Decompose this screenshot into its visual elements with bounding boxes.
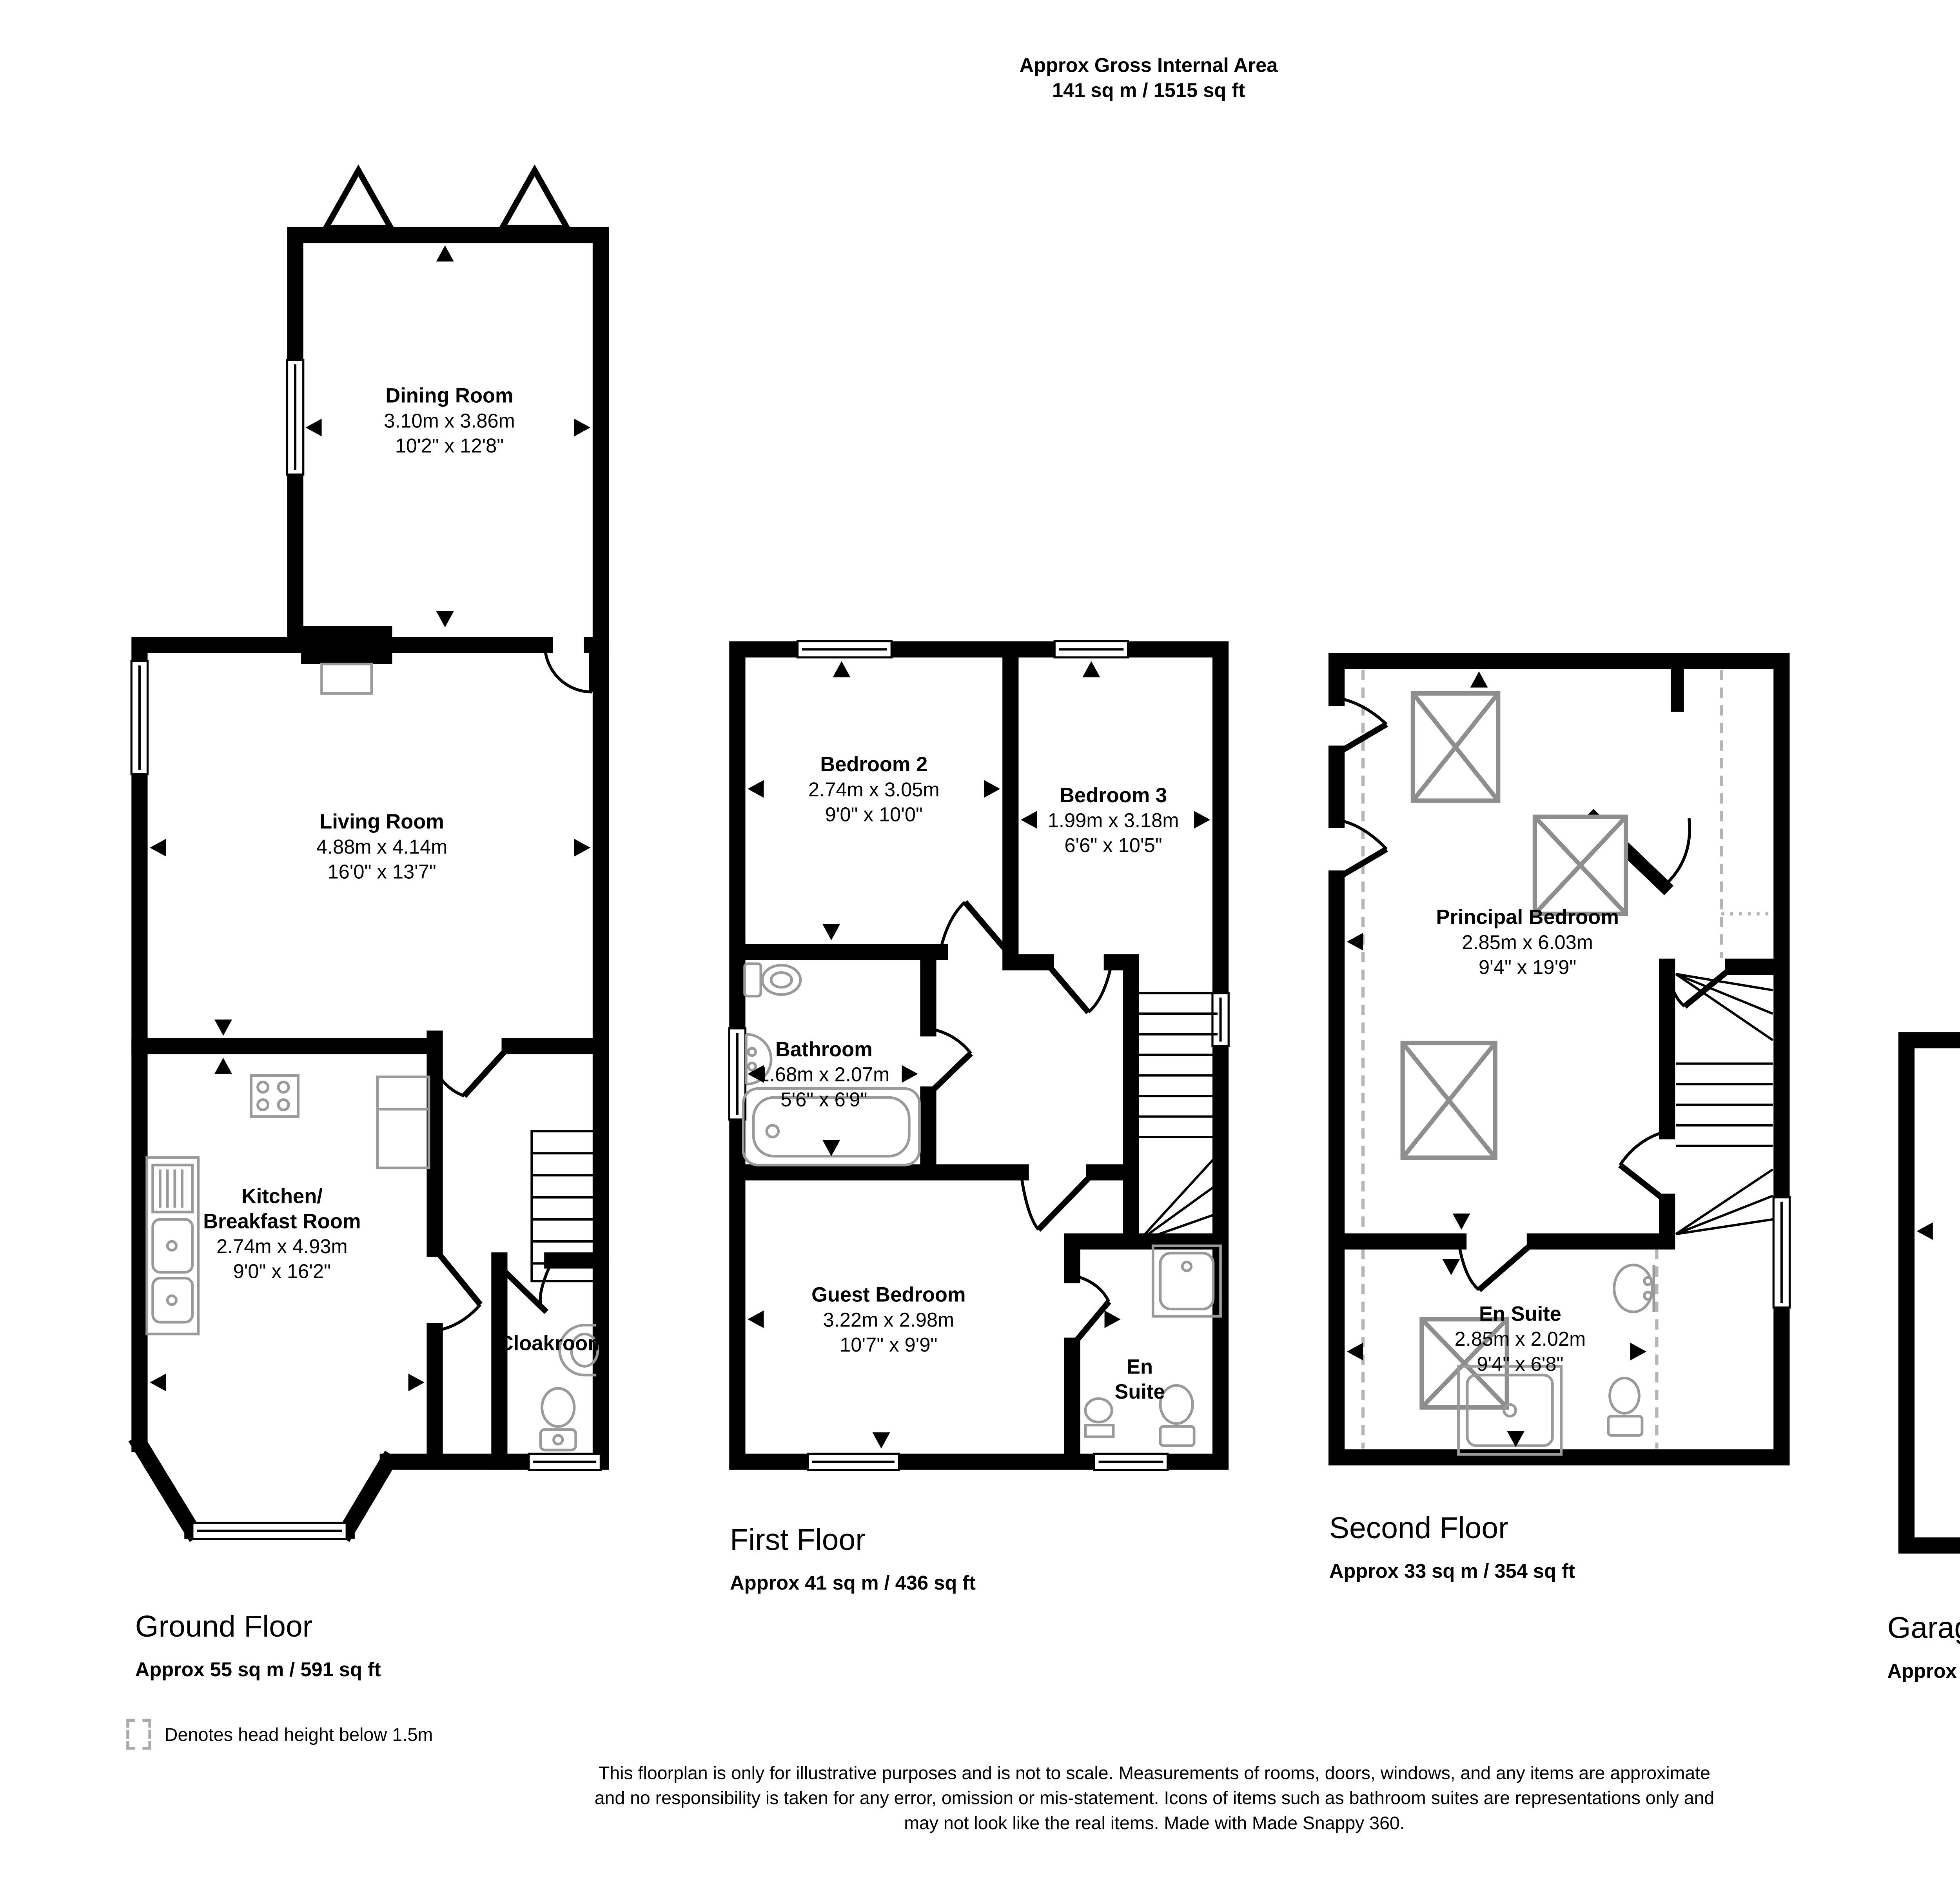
hob-icon (251, 1076, 298, 1117)
floor-label-garage: Garage Approx 12 sq m / 134 sq ft (1887, 1612, 1960, 1682)
toilet-icon (1608, 1378, 1642, 1435)
room-label-dining: Dining Room 3.10m x 3.86m 10'2" x 12'8" (384, 383, 515, 458)
room-label-ensuite-second: En Suite 2.85m x 2.02m 9'4" x 6'8" (1455, 1302, 1586, 1377)
room-label-bedroom3: Bedroom 3 1.99m x 3.18m 6'6" x 10'5" (1048, 783, 1179, 858)
room-label-cloakroom: Cloakroom (499, 1331, 606, 1356)
fridge-icon (377, 1077, 429, 1168)
disclaimer-line3: may not look like the real items. Made w… (904, 1813, 1405, 1833)
disclaimer: This floorplan is only for illustrative … (595, 1761, 1715, 1836)
toilet-icon (541, 1388, 576, 1450)
sink-icon (1614, 1265, 1654, 1312)
room-label-kitchen: Kitchen/ Breakfast Room 2.74m x 4.93m 9'… (203, 1184, 361, 1284)
gable-icon (502, 171, 567, 228)
room-label-bedroom2: Bedroom 2 2.74m x 3.05m 9'0" x 10'0" (808, 752, 940, 827)
title-line2: 141 sq m / 1515 sq ft (1052, 79, 1245, 101)
kitchen-sink-icon (147, 1157, 198, 1334)
sink-icon (1085, 1399, 1113, 1437)
floor-label-first: First Floor Approx 41 sq m / 436 sq ft (730, 1523, 976, 1594)
head-height-swatch-icon (126, 1719, 151, 1750)
page-title: Approx Gross Internal Area 141 sq m / 15… (1020, 53, 1278, 103)
room-label-principal-bedroom: Principal Bedroom 2.85m x 6.03m 9'4" x 1… (1436, 905, 1619, 980)
legend-text: Denotes head height below 1.5m (165, 1724, 433, 1744)
legend: Denotes head height below 1.5m (126, 1719, 433, 1750)
fireplace-icon (322, 664, 372, 694)
garage-plan (1906, 1030, 1960, 1546)
disclaimer-line1: This floorplan is only for illustrative … (599, 1763, 1710, 1783)
room-label-ensuite-first: En Suite (1114, 1355, 1165, 1405)
measure-arrow (1917, 1052, 1960, 1534)
room-label-living: Living Room 4.88m x 4.14m 16'0" x 13'7" (316, 809, 448, 884)
stairs-icon (1138, 993, 1218, 1241)
toilet-icon (745, 964, 800, 996)
room-label-guest-bedroom: Guest Bedroom 3.22m x 2.98m 10'7" x 9'9" (811, 1283, 965, 1357)
floor-label-ground: Ground Floor Approx 55 sq m / 591 sq ft (135, 1610, 381, 1681)
floorplan-page: Approx Gross Internal Area 141 sq m / 15… (0, 0, 1960, 1886)
skylight-icon (1403, 693, 1626, 1407)
stairs-icon (1676, 974, 1773, 1234)
shower-icon (1153, 1246, 1220, 1316)
room-label-bathroom: Bathroom 1.68m x 2.07m 5'6" x 6'9" (759, 1037, 890, 1112)
gable-icon (326, 171, 391, 228)
cloakroom-walls (499, 1261, 601, 1462)
toilet-icon (1160, 1385, 1194, 1446)
door-arc (426, 645, 592, 1331)
window (1773, 1197, 1789, 1308)
floorplan-graphics (0, 0, 1960, 1886)
floor-label-second: Second Floor Approx 33 sq m / 354 sq ft (1329, 1512, 1575, 1582)
disclaimer-line2: and no responsibility is taken for any e… (595, 1788, 1715, 1808)
title-line1: Approx Gross Internal Area (1020, 55, 1278, 76)
chimney-breast (301, 626, 392, 664)
garage-walls (1906, 1040, 1960, 1546)
window (131, 360, 601, 1539)
